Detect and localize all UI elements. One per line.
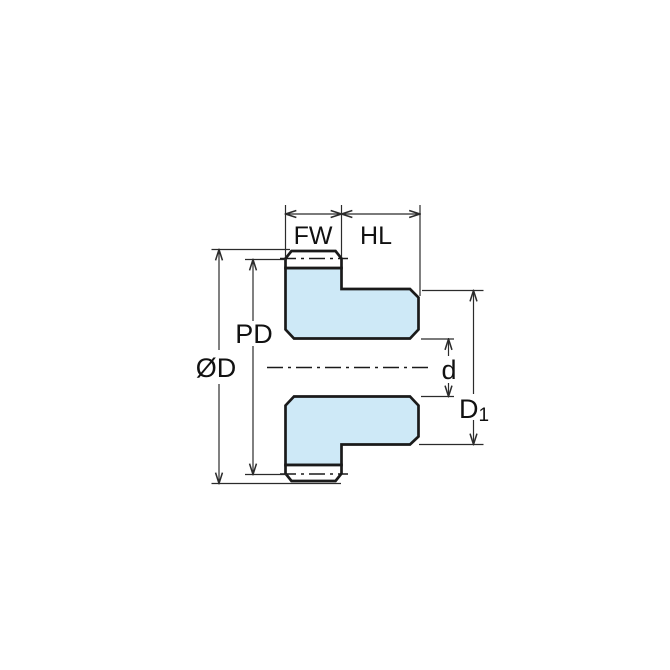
label-hub-diameter-main: D bbox=[459, 394, 479, 424]
gear-cross-section bbox=[286, 251, 419, 481]
label-hub-diameter-subscript: 1 bbox=[478, 405, 489, 426]
label-hub-length: HL bbox=[360, 222, 392, 250]
label-hub-diameter: D1 bbox=[459, 394, 489, 426]
label-face-width: FW bbox=[294, 222, 333, 250]
gear-lower-body bbox=[286, 397, 419, 466]
label-outside-diameter: ØD bbox=[196, 353, 237, 383]
label-pitch-diameter: PD bbox=[235, 319, 273, 349]
gear-dimension-diagram: FW HL ØD PD d D1 bbox=[0, 0, 670, 670]
gear-bottom-tooth bbox=[286, 465, 342, 481]
gear-upper-body bbox=[286, 268, 419, 339]
gear-top-tooth bbox=[286, 251, 342, 268]
dimension-hub-length bbox=[342, 205, 421, 296]
drawing-canvas: FW HL ØD PD d D1 bbox=[0, 0, 670, 670]
label-bore-diameter: d bbox=[441, 355, 456, 385]
